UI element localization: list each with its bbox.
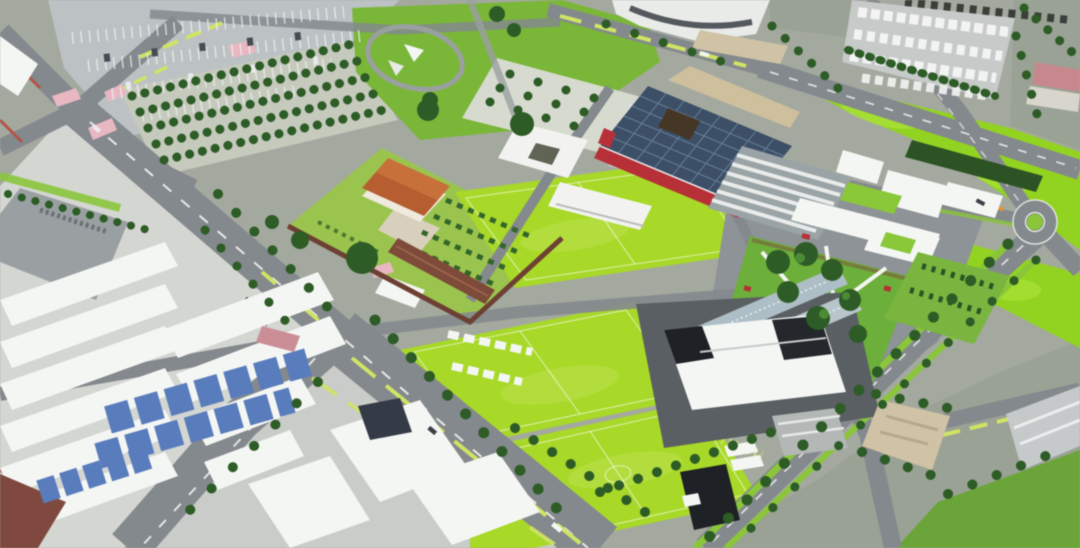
- tree-highlight: [842, 292, 850, 300]
- tree-highlight: [795, 253, 805, 263]
- aerial-render-frame: [0, 0, 1080, 548]
- roundabout: [1013, 200, 1057, 244]
- masterplan-scene: [0, 0, 1080, 548]
- roundabout-island: [1027, 214, 1043, 230]
- tree-highlight: [819, 309, 829, 319]
